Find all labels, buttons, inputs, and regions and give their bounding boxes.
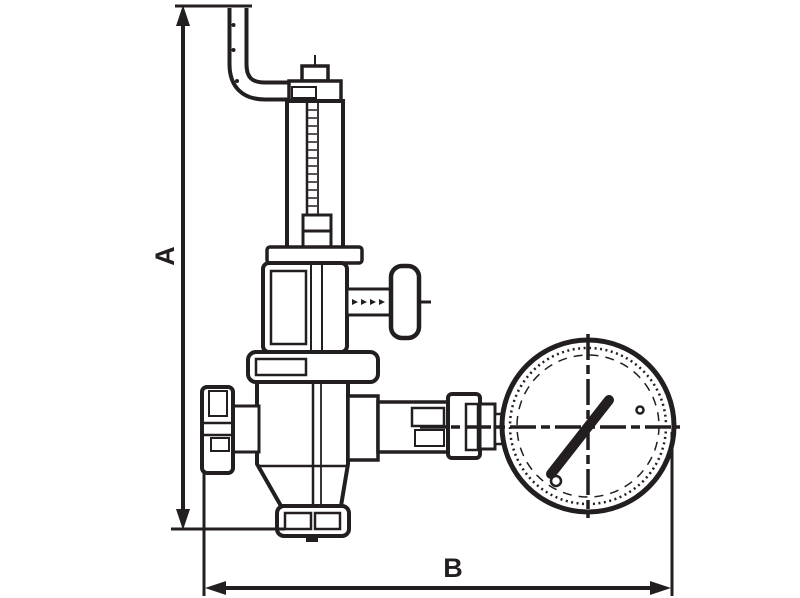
pipe-weld-dot <box>232 48 236 52</box>
inlet-knob <box>202 387 233 473</box>
arrowhead-down <box>176 509 190 530</box>
valve-with-gauge-drawing: A B <box>0 0 800 598</box>
housing-base-flange <box>267 247 362 263</box>
outlet-flange <box>348 396 378 460</box>
valve-body <box>257 382 348 506</box>
spring-housing-column <box>287 101 343 250</box>
lock-nut <box>303 215 331 231</box>
dimension-label-B: B <box>443 553 463 583</box>
arrowhead-right <box>650 581 671 595</box>
arrowhead-left <box>205 581 226 595</box>
spring-chamber <box>263 263 347 352</box>
bonnet-cap <box>289 55 341 101</box>
pipe-weld-dot <box>235 79 239 83</box>
needle-hub <box>551 476 561 486</box>
technical-drawing-canvas: A B <box>0 0 800 598</box>
inlet-pipe-elbow <box>232 8 292 91</box>
inlet-stem <box>233 406 259 452</box>
body-top-flange <box>248 352 378 382</box>
t-handle-bar <box>391 266 419 338</box>
pipe-weld-dot <box>232 23 236 27</box>
pressure-gauge <box>420 334 680 518</box>
arrowhead-up <box>176 5 190 26</box>
dial-marker-dot <box>637 407 644 414</box>
lock-nut <box>303 231 331 247</box>
bottom-outlet-flange <box>277 506 349 542</box>
drain-tab <box>306 534 318 542</box>
t-handle <box>347 266 431 338</box>
dimension-label-A: A <box>150 246 180 266</box>
